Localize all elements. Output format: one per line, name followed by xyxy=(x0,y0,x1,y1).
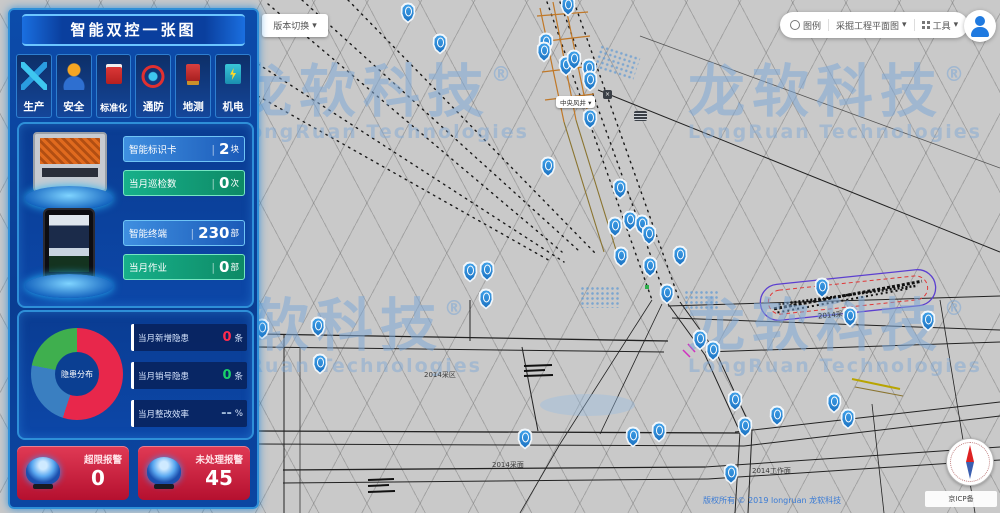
map-pin[interactable] xyxy=(310,316,327,337)
pin-glyph xyxy=(522,432,529,442)
map-pin[interactable] xyxy=(642,256,659,277)
stat-monthly-inspection: 当月巡检数 | 0 次 xyxy=(123,170,245,196)
icp-badge: 京ICP备 xyxy=(925,491,997,507)
pin-glyph xyxy=(618,250,625,260)
divider xyxy=(828,19,829,31)
sidebar-item-production[interactable]: 生产 xyxy=(16,54,52,118)
map-pin[interactable] xyxy=(737,416,754,437)
pin-glyph xyxy=(774,409,781,419)
pin-glyph xyxy=(925,314,932,324)
legend-button[interactable]: 图例 xyxy=(790,19,821,32)
chevron-down-icon: ▾ xyxy=(312,21,317,31)
sidebar-item-standardization[interactable]: 标准化 xyxy=(96,54,132,118)
pin-glyph xyxy=(710,344,717,354)
stat-monthly-operation: 当月作业 | 0 部 xyxy=(123,254,245,280)
hazard-panel: 隐患分布 当月新增隐患 0 条 当月销号隐患 0 条 当月整改效率 -- % xyxy=(17,310,254,440)
map-pin[interactable] xyxy=(612,178,629,199)
map-pin[interactable] xyxy=(769,405,786,426)
chevron-down-icon: ▾ xyxy=(902,20,907,30)
pin-glyph xyxy=(612,220,619,230)
row-rectification-rate: 当月整改效率 -- % xyxy=(131,400,247,427)
stat-smart-terminal: 智能终端 | 230 部 xyxy=(123,220,245,246)
map-pin[interactable] xyxy=(478,288,495,309)
copyright-text: 版权所有 © 2019 longruan 龙软科技 xyxy=(703,495,841,506)
unhandled-alarm-card[interactable]: 未处理报警 45 xyxy=(138,446,250,500)
map-pin[interactable] xyxy=(432,33,449,54)
map-pin[interactable] xyxy=(659,283,676,304)
pin-glyph xyxy=(484,264,491,274)
map-pin[interactable] xyxy=(840,408,857,429)
pin-glyph xyxy=(259,322,266,332)
pin-glyph xyxy=(565,0,572,9)
map-pin[interactable] xyxy=(582,108,599,129)
map-pin[interactable] xyxy=(705,340,722,361)
map-pin[interactable] xyxy=(560,0,577,16)
pin-glyph xyxy=(697,333,704,343)
map-pin[interactable] xyxy=(842,306,859,327)
pin-glyph xyxy=(315,320,322,330)
close-icon[interactable]: × xyxy=(603,90,612,99)
device-stats-panel: 智能标识卡 | 2 块 当月巡检数 | 0 次 智能终端 | 230 部 当月作… xyxy=(17,122,254,308)
pin-glyph xyxy=(664,287,671,297)
donut-center-label: 隐患分布 xyxy=(61,369,93,380)
pin-glyph xyxy=(819,281,826,291)
glow-base xyxy=(25,186,113,210)
ventilation-icon xyxy=(142,65,165,88)
tools-dropdown[interactable]: 工具 ▾ xyxy=(922,19,959,32)
map-pin[interactable] xyxy=(613,246,630,267)
pin-glyph xyxy=(541,45,548,55)
pin-glyph xyxy=(627,214,634,224)
map-pin[interactable] xyxy=(727,390,744,411)
map-pin[interactable] xyxy=(723,463,740,484)
map-selector-dropdown[interactable]: 采掘工程平面图 ▾ xyxy=(836,19,907,32)
pin-glyph xyxy=(831,396,838,406)
pin-glyph xyxy=(677,249,684,259)
pin-glyph xyxy=(467,265,474,275)
pin-glyph xyxy=(732,394,739,404)
smart-card-image xyxy=(33,132,107,192)
map-pin[interactable] xyxy=(536,41,553,62)
pin-glyph xyxy=(545,160,552,170)
siren-icon xyxy=(26,457,60,485)
version-switch-dropdown[interactable]: 版本切换▾ xyxy=(262,14,328,37)
pin-glyph xyxy=(483,292,490,302)
sidebar-item-safety[interactable]: 安全 xyxy=(56,54,92,118)
divider xyxy=(914,19,915,31)
map-pin[interactable] xyxy=(582,70,599,91)
map-pin[interactable] xyxy=(625,426,642,447)
legend-icon xyxy=(790,20,800,30)
map-toolbar: 图例 采掘工程平面图 ▾ 工具 ▾ xyxy=(780,12,968,38)
map-pin[interactable] xyxy=(479,260,496,281)
overlimit-alarm-card[interactable]: 超限报警 0 xyxy=(17,446,129,500)
pin-glyph xyxy=(845,412,852,422)
tools-icon xyxy=(922,21,930,29)
map-pin[interactable] xyxy=(312,353,329,374)
map-pin[interactable] xyxy=(517,428,534,449)
geology-icon xyxy=(186,64,200,81)
row-new-hazards: 当月新增隐患 0 条 xyxy=(131,324,247,351)
map-pin[interactable] xyxy=(672,245,689,266)
pin-glyph xyxy=(317,357,324,367)
pin-glyph xyxy=(656,425,663,435)
pin-glyph xyxy=(587,74,594,84)
production-icon xyxy=(21,62,47,90)
siren-icon xyxy=(147,457,181,485)
sidebar-item-geology[interactable]: 地测 xyxy=(175,54,211,118)
marker-label[interactable]: 中央风井 ▾ xyxy=(556,96,595,108)
user-avatar-button[interactable] xyxy=(964,10,996,42)
module-nav: 生产 安全 标准化 通防 地测 机电 xyxy=(16,54,251,118)
map-pin[interactable] xyxy=(641,224,658,245)
map-pin[interactable] xyxy=(540,156,557,177)
map-pin[interactable] xyxy=(814,277,831,298)
menu-icon[interactable] xyxy=(634,111,647,121)
pin-glyph xyxy=(571,53,578,63)
map-pin[interactable] xyxy=(651,421,668,442)
smart-terminal-image xyxy=(43,208,95,282)
pin-glyph xyxy=(630,430,637,440)
map-pin[interactable] xyxy=(462,261,479,282)
chevron-down-icon: ▾ xyxy=(954,20,959,30)
page-title: 智能双控一张图 xyxy=(22,14,245,46)
standardization-icon xyxy=(106,64,122,84)
pin-glyph xyxy=(847,310,854,320)
stat-smart-card: 智能标识卡 | 2 块 xyxy=(123,136,245,162)
pin-glyph xyxy=(647,260,654,270)
pin-glyph xyxy=(742,420,749,430)
hazard-donut-chart: 隐患分布 xyxy=(31,328,123,420)
sidebar-item-electromechanical[interactable]: 机电 xyxy=(215,54,251,118)
row-closed-hazards: 当月销号隐患 0 条 xyxy=(131,362,247,389)
sidebar: 智能双控一张图 生产 安全 标准化 通防 地测 机电 xyxy=(8,8,259,509)
pin-glyph xyxy=(728,467,735,477)
pin-glyph xyxy=(437,37,444,47)
pin-glyph xyxy=(646,228,653,238)
map-pin[interactable] xyxy=(920,310,937,331)
electromechanical-icon xyxy=(225,64,241,84)
sidebar-item-ventilation[interactable]: 通防 xyxy=(135,54,171,118)
pin-glyph xyxy=(587,112,594,122)
pin-glyph xyxy=(405,6,412,16)
safety-icon xyxy=(61,62,87,90)
pin-glyph xyxy=(617,182,624,192)
map-pin[interactable] xyxy=(400,2,417,23)
glow-base xyxy=(25,274,113,298)
